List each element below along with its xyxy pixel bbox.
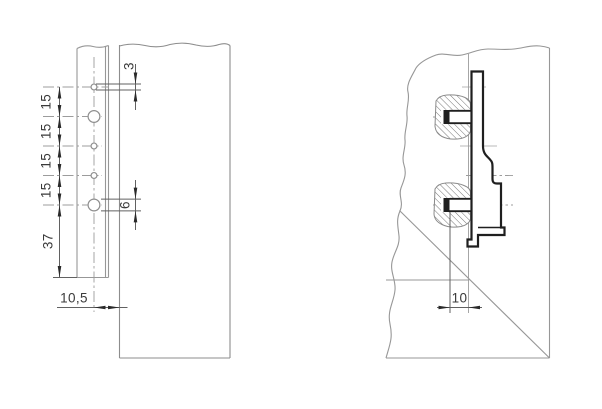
dim-label-15-4: 15 — [39, 182, 54, 198]
dimension-small-hole: 3 — [96, 62, 141, 110]
dim-label-10-5: 10,5 — [60, 291, 88, 306]
dimension-edge-distance: 10,5 — [57, 291, 128, 310]
lower-screw — [441, 198, 472, 212]
section-view: 10 — [386, 46, 550, 358]
lower-screw-tip — [444, 198, 450, 212]
hole-small-2 — [91, 143, 97, 149]
dimension-large-hole: 6 — [101, 180, 141, 230]
upper-screw — [441, 110, 472, 124]
profile-outline — [468, 72, 505, 247]
upper-screw-tip — [444, 110, 450, 124]
dim-label-6: 6 — [118, 201, 133, 209]
dim-label-3: 3 — [122, 62, 137, 70]
rail-strip-outline — [77, 46, 109, 278]
front-view: 15 15 15 15 37 3 6 — [39, 43, 231, 358]
dim-label-15-3: 15 — [39, 153, 54, 169]
pitch-dimension-chain: 15 15 15 15 37 — [39, 87, 78, 278]
dim-label-10: 10 — [452, 291, 468, 306]
rail-profile-section — [468, 72, 505, 247]
drawing-svg: 15 15 15 15 37 3 6 — [0, 0, 602, 409]
hole-large-1 — [88, 111, 100, 123]
panel-top-break-line — [120, 43, 231, 47]
strip-top-break-line — [77, 46, 109, 49]
hole-large-2 — [88, 199, 100, 211]
dim-label-15-1: 15 — [39, 94, 54, 110]
dim-label-15-2: 15 — [39, 123, 54, 139]
technical-drawing-page: 15 15 15 15 37 3 6 — [0, 0, 602, 409]
dim-label-37: 37 — [41, 233, 56, 249]
hole-small-1 — [91, 84, 97, 90]
hole-small-3 — [91, 173, 97, 179]
